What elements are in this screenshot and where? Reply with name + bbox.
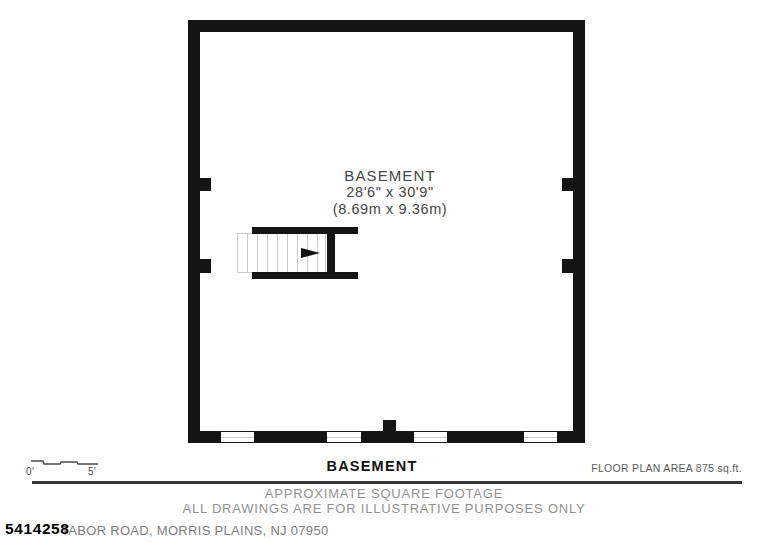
disclaimer-line-2: ALL DRAWINGS ARE FOR ILLUSTRATIVE PURPOS…	[84, 502, 684, 517]
footer-divider	[32, 481, 742, 484]
listing-id: 5414258	[5, 520, 70, 538]
window-marker	[524, 431, 557, 443]
property-address: TABOR ROAD, MORRIS PLAINS, NJ 07950	[61, 523, 328, 538]
bottom-center-wall-stub	[383, 420, 396, 432]
stair-wall-divider	[327, 227, 335, 279]
right-wall-stub-lower	[562, 259, 573, 273]
room-dimensions-metric: (8.69m x 9.36m)	[240, 201, 540, 218]
room-dimensions-imperial: 28'6" x 30'9"	[240, 184, 540, 201]
disclaimer-line-1: APPROXIMATE SQUARE FOOTAGE	[84, 487, 684, 502]
stair-direction-arrow-icon	[296, 246, 322, 260]
room-name: BASEMENT	[240, 167, 540, 184]
window-marker	[221, 431, 254, 443]
left-wall-stub-lower	[200, 259, 211, 273]
window-marker	[327, 431, 361, 443]
floor-title: BASEMENT	[272, 458, 472, 474]
right-wall-stub-upper	[562, 178, 573, 191]
floor-plan-area-note: FLOOR PLAN AREA 875 sq.ft.	[591, 462, 742, 474]
floor-plan-page: BASEMENT 28'6" x 30'9" (8.69m x 9.36m) 0…	[0, 0, 768, 542]
disclaimer-block: APPROXIMATE SQUARE FOOTAGE ALL DRAWINGS …	[84, 487, 684, 516]
scale-label-zero: 0'	[26, 466, 34, 477]
window-marker	[414, 431, 447, 443]
left-wall-stub-upper	[200, 178, 211, 191]
floor-plan-outline	[188, 20, 585, 443]
scale-label-five: 5'	[88, 466, 96, 477]
stair-wall-bottom	[252, 272, 358, 279]
stair-wall-top	[252, 227, 358, 234]
room-label-block: BASEMENT 28'6" x 30'9" (8.69m x 9.36m)	[240, 167, 540, 217]
